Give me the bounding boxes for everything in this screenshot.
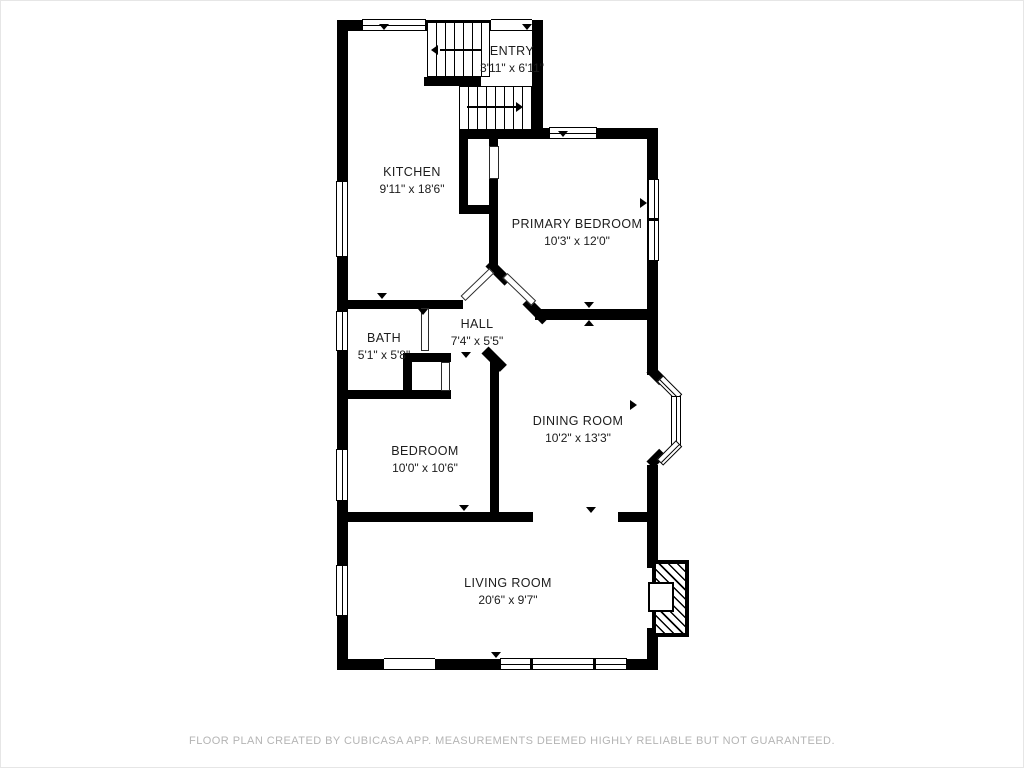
marker-bath-door-icon <box>418 309 428 315</box>
fireplace-firebox <box>648 582 674 612</box>
wall-living-north-east <box>618 512 658 522</box>
room-label-living-room: LIVING ROOM 20'6" x 9'7" <box>464 576 552 607</box>
room-label-kitchen: KITCHEN 9'11" x 18'6" <box>380 165 445 196</box>
wall-entry-south <box>459 129 543 139</box>
wall-bedroom-dining-divider <box>490 360 499 522</box>
room-name: HALL <box>451 317 503 331</box>
door-leaf-hall-northeast <box>503 273 537 306</box>
marker-primary-door-upper-icon <box>584 302 594 308</box>
room-label-entry: ENTRY 3'11" x 6'11" <box>480 44 544 75</box>
marker-top-window-icon <box>379 24 389 30</box>
wall-bath-south <box>337 390 451 399</box>
room-label-primary-bedroom: PRIMARY BEDROOM 10'3" x 12'0" <box>512 217 643 248</box>
marker-front-door-icon <box>522 24 532 30</box>
door-leaf-closet <box>441 362 450 391</box>
room-dimensions: 10'3" x 12'0" <box>512 234 643 248</box>
room-dimensions: 3'11" x 6'11" <box>480 61 544 75</box>
room-name: DINING ROOM <box>533 414 624 428</box>
window-kitchen-west <box>336 181 348 257</box>
wall-kitchen-primary-stub <box>489 128 498 148</box>
room-name: LIVING ROOM <box>464 576 552 590</box>
room-dimensions: 20'6" x 9'7" <box>464 593 552 607</box>
marker-living-wall-icon <box>459 505 469 511</box>
window-bedroom-west <box>336 449 348 501</box>
window-bay-center <box>671 396 681 446</box>
marker-bay-window-icon <box>630 400 637 410</box>
window-primary-bedroom-north <box>549 127 597 139</box>
marker-south-window-icon <box>491 652 501 658</box>
stairs-upper-direction-line <box>440 49 482 51</box>
marker-dining-living-opening-icon <box>586 507 596 513</box>
room-label-dining-room: DINING ROOM 10'2" x 13'3" <box>533 414 624 445</box>
room-label-bedroom: BEDROOM 10'0" x 10'6" <box>391 444 458 475</box>
room-name: BEDROOM <box>391 444 458 458</box>
door-leaf-hall-northwest <box>461 268 495 301</box>
wall-living-north-west <box>337 512 533 522</box>
room-dimensions: 10'0" x 10'6" <box>391 461 458 475</box>
room-dimensions: 7'4" x 5'5" <box>451 334 503 348</box>
stairs-lower-arrow-icon <box>516 102 523 112</box>
window-sash-living-south-1 <box>530 658 533 670</box>
floor-plan-page: { "meta": { "footer": "FLOOR PLAN CREATE… <box>0 0 1024 768</box>
wall-stair-separator <box>424 77 481 86</box>
room-name: BATH <box>358 331 410 345</box>
stairs-lower-direction-line <box>467 106 517 108</box>
window-kitchen-north <box>362 19 426 31</box>
room-dimensions: 9'11" x 18'6" <box>380 182 445 196</box>
wall-entry-east <box>532 20 543 139</box>
room-dimensions: 5'1" x 5'8" <box>358 348 410 362</box>
window-living-west <box>336 565 348 616</box>
footer-disclaimer: FLOOR PLAN CREATED BY CUBICASA APP. MEAS… <box>0 735 1024 747</box>
stairs-upper-arrow-icon <box>431 45 438 55</box>
wall-primary-bedroom-south <box>535 309 658 320</box>
room-name: PRIMARY BEDROOM <box>512 217 643 231</box>
room-label-bath: BATH 5'1" x 5'8" <box>358 331 410 362</box>
marker-bedroom-door-icon <box>461 352 471 358</box>
window-sash-primary-east <box>648 218 659 221</box>
room-dimensions: 10'2" x 13'3" <box>533 431 624 445</box>
window-living-south <box>500 658 627 670</box>
wall-kitchen-east <box>459 138 468 214</box>
room-name: ENTRY <box>480 44 544 58</box>
door-opening-living-south <box>384 658 435 670</box>
marker-primary-door-lower-icon <box>584 320 594 326</box>
door-leaf-kitchen-primary <box>489 146 499 179</box>
marker-primary-window-icon <box>558 131 568 137</box>
marker-bath-wall-icon <box>377 293 387 299</box>
room-label-hall: HALL 7'4" x 5'5" <box>451 317 503 348</box>
window-sash-living-south-2 <box>593 658 596 670</box>
marker-primary-east-window-icon <box>640 198 647 208</box>
wall-kitchen-south <box>337 300 463 309</box>
wall-kitchen-primary-divider <box>489 178 498 266</box>
room-name: KITCHEN <box>380 165 445 179</box>
window-bath-west <box>336 311 348 351</box>
